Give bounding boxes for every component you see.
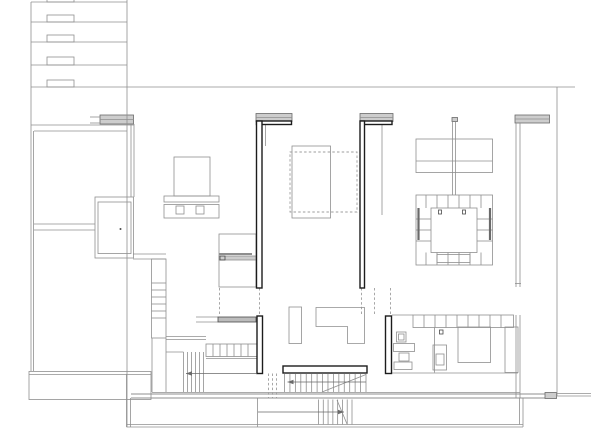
- layer-rects: [29, 0, 518, 400]
- stair-kitchen-arrow: [186, 371, 256, 376]
- core-room-inner: [98, 202, 131, 254]
- core-room-outer: [95, 197, 134, 258]
- black-wall-living-left: [257, 316, 263, 374]
- study-chair: [174, 157, 210, 196]
- bath-wc-inner: [436, 354, 444, 365]
- driveway-step-tab-5: [47, 80, 74, 87]
- floor-plan-canvas: [0, 0, 600, 433]
- study-sideboard-top: [164, 196, 219, 202]
- driveway-step-tab-4: [47, 57, 74, 65]
- study-drawer-2: [196, 206, 204, 214]
- floor-plan-page: [0, 0, 600, 433]
- suite-bed: [458, 327, 491, 363]
- wardrobe-unit: [416, 139, 493, 173]
- layer-lines: [29, 0, 591, 427]
- cabinet-shelf-band: [219, 256, 256, 260]
- layer-dots: [120, 228, 122, 230]
- bath-fixture: [397, 332, 407, 342]
- black-wall-bedroom-right-h: [361, 121, 392, 125]
- terrace-outline: [29, 372, 151, 400]
- bath-sink: [399, 353, 409, 361]
- vanity-basin: [431, 208, 477, 253]
- layer-wall-caps: [100, 114, 557, 399]
- stair-main-treads: [285, 374, 367, 392]
- wall-cap-dressing: [452, 118, 458, 122]
- black-wall-bedroom-right-v: [360, 121, 365, 288]
- bath-wc-unit: [433, 345, 447, 370]
- black-wall-living-right: [386, 316, 392, 374]
- layer-paths: [316, 308, 365, 344]
- skylight-dashed-outline: [290, 152, 357, 212]
- core-door-dot: [120, 228, 122, 230]
- stair-lower-arrow: [258, 410, 344, 415]
- study-drawer-unit: [164, 205, 219, 219]
- bed-outline: [292, 146, 331, 218]
- stair-main-arrow: [288, 380, 367, 385]
- stair-kitchen-arrow-head-icon: [186, 371, 192, 376]
- suite-closet-row: [413, 315, 514, 328]
- layer-black-walls: [257, 121, 393, 374]
- kitchen-counter: [206, 344, 257, 357]
- bath-fixture-inner: [399, 334, 405, 340]
- bath-door-tick: [440, 330, 444, 334]
- shelf-closet: [152, 259, 167, 338]
- vanity-basin-lower: [437, 255, 470, 263]
- vanity-faucet-2: [463, 210, 466, 214]
- sofa-outline: [316, 308, 365, 344]
- stair-main-arrow-head-icon: [288, 380, 294, 385]
- wall-cap-facade-end: [545, 393, 557, 399]
- kitchen-tall-cabinet: [219, 234, 256, 287]
- bath-counter: [394, 344, 415, 352]
- driveway-step-tab-1: [47, 0, 74, 2]
- study-drawer-1: [176, 206, 184, 214]
- stair-landing-slab: [283, 366, 367, 373]
- stair-kitchen-treads: [184, 352, 204, 392]
- kitchen-island: [218, 317, 256, 322]
- media-sideboard: [289, 307, 302, 344]
- driveway-step-tab-2: [47, 15, 74, 22]
- driveway-step-tab-3: [47, 35, 74, 42]
- vanity-faucet-1: [439, 210, 442, 214]
- bath-fixture-low: [394, 362, 412, 370]
- black-wall-bedroom-left-v: [257, 121, 263, 288]
